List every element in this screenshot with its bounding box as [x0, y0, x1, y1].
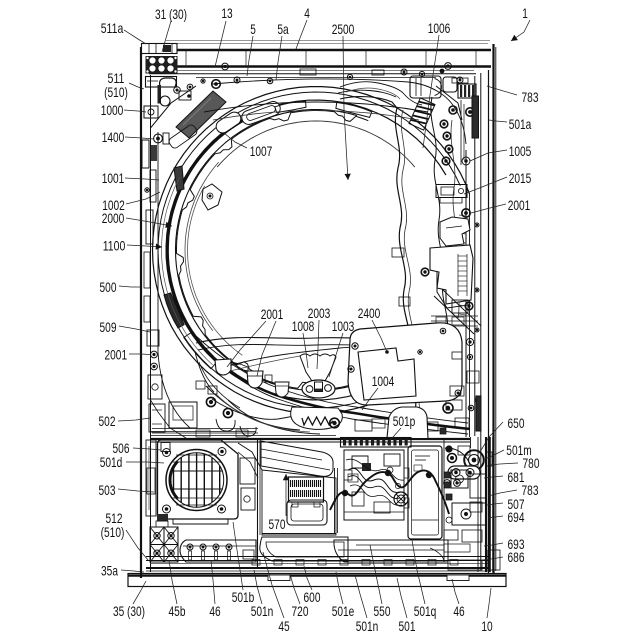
- svg-text:500: 500: [100, 279, 117, 295]
- svg-text:1: 1: [522, 5, 528, 21]
- svg-text:1004: 1004: [372, 373, 395, 389]
- svg-text:501: 501: [399, 618, 416, 634]
- svg-text:501n: 501n: [356, 618, 379, 634]
- svg-text:46: 46: [209, 603, 220, 619]
- svg-text:1100: 1100: [103, 238, 126, 254]
- svg-text:1007: 1007: [250, 143, 273, 159]
- svg-text:2000: 2000: [102, 210, 125, 226]
- svg-text:686: 686: [508, 549, 525, 565]
- svg-text:45: 45: [278, 618, 289, 634]
- svg-text:1008: 1008: [292, 318, 315, 334]
- svg-text:13: 13: [221, 5, 232, 21]
- svg-text:2001: 2001: [105, 346, 128, 362]
- svg-text:2400: 2400: [358, 305, 381, 321]
- svg-text:1006: 1006: [428, 20, 451, 36]
- svg-text:783: 783: [522, 89, 539, 105]
- svg-text:2015: 2015: [509, 170, 532, 186]
- svg-text:694: 694: [508, 509, 525, 525]
- svg-text:(510): (510): [101, 524, 125, 540]
- svg-text:600: 600: [304, 589, 321, 605]
- svg-text:2001: 2001: [508, 197, 531, 213]
- svg-text:501e: 501e: [332, 603, 355, 619]
- svg-text:501a: 501a: [509, 116, 532, 132]
- svg-text:509: 509: [100, 319, 117, 335]
- svg-text:35a: 35a: [101, 563, 118, 579]
- svg-text:1000: 1000: [101, 102, 124, 118]
- svg-text:1400: 1400: [102, 129, 125, 145]
- svg-text:511a: 511a: [101, 20, 124, 36]
- svg-text:4: 4: [304, 5, 310, 21]
- svg-text:1001: 1001: [102, 170, 125, 186]
- svg-text:780: 780: [523, 455, 540, 471]
- svg-text:720: 720: [292, 603, 309, 619]
- svg-text:502: 502: [99, 413, 116, 429]
- svg-text:(510): (510): [104, 84, 128, 100]
- svg-text:501p: 501p: [393, 413, 416, 429]
- svg-text:501n: 501n: [251, 603, 274, 619]
- svg-text:5: 5: [250, 21, 256, 37]
- svg-text:1003: 1003: [332, 318, 355, 334]
- svg-text:2500: 2500: [332, 21, 355, 37]
- svg-text:501d: 501d: [100, 454, 123, 470]
- svg-text:501q: 501q: [414, 603, 437, 619]
- svg-text:570: 570: [269, 516, 286, 532]
- svg-text:31 (30): 31 (30): [155, 6, 187, 22]
- svg-text:550: 550: [374, 603, 391, 619]
- svg-text:503: 503: [99, 482, 116, 498]
- svg-text:5a: 5a: [277, 21, 288, 37]
- svg-text:650: 650: [508, 415, 525, 431]
- svg-text:2001: 2001: [261, 306, 284, 322]
- svg-text:1005: 1005: [509, 143, 532, 159]
- svg-text:45b: 45b: [169, 603, 186, 619]
- svg-text:35 (30): 35 (30): [113, 603, 145, 619]
- svg-text:46: 46: [453, 603, 464, 619]
- svg-text:10: 10: [481, 618, 492, 634]
